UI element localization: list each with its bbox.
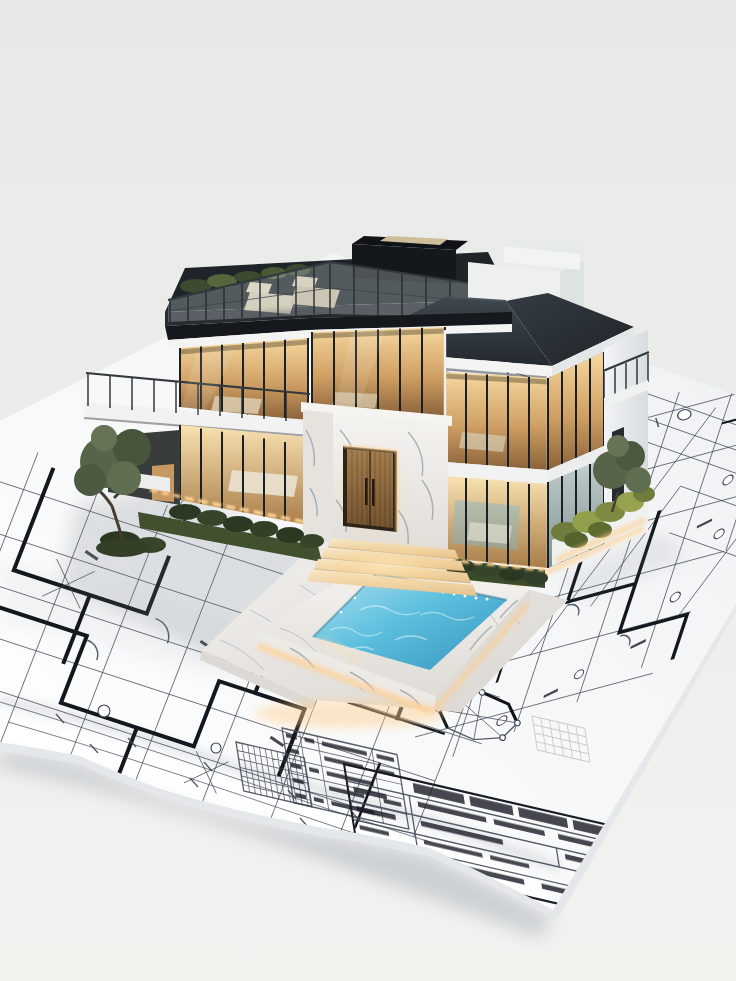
right-south-upper-glass bbox=[445, 372, 548, 470]
portal-side-west bbox=[303, 410, 333, 544]
glass-facade-south bbox=[312, 327, 445, 417]
tree-left-base-bush bbox=[96, 539, 148, 557]
pool-glow-spill bbox=[255, 700, 445, 728]
photograph bbox=[0, 0, 736, 981]
scene-canvas bbox=[0, 0, 736, 981]
steps-glow bbox=[312, 542, 468, 590]
interior-bed-upper bbox=[211, 396, 262, 414]
door-handle-left bbox=[365, 478, 368, 505]
door-handle-right bbox=[372, 479, 375, 506]
